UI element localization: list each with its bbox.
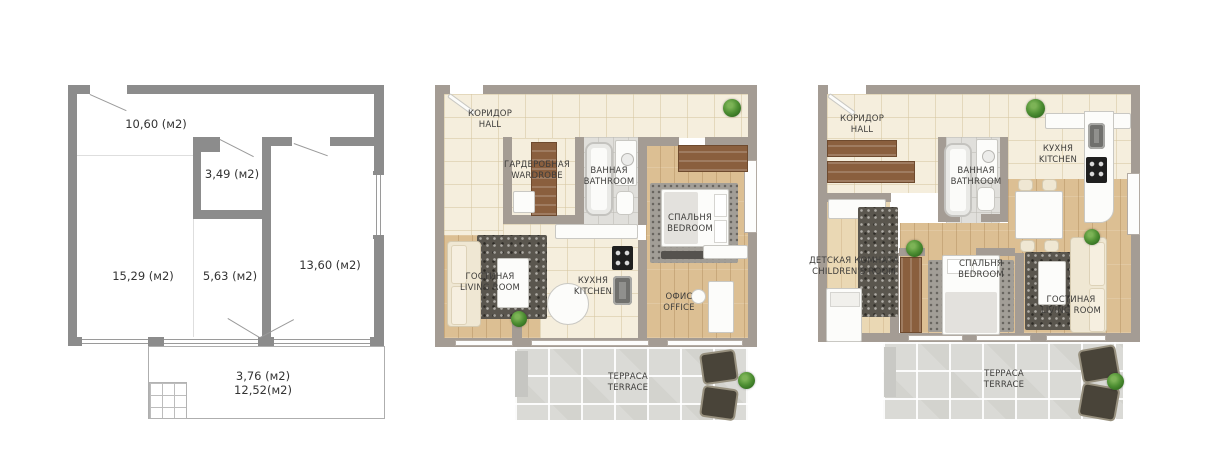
wall xyxy=(435,85,444,347)
window xyxy=(376,173,381,237)
room-label-office: ОФИСOFFICE xyxy=(663,292,694,314)
wall xyxy=(374,85,384,173)
plant xyxy=(1107,373,1124,390)
wall xyxy=(373,171,384,175)
sink-basin xyxy=(621,153,634,166)
wall xyxy=(647,137,679,146)
wall xyxy=(193,210,270,219)
terrace-chair xyxy=(699,385,739,422)
wall xyxy=(638,240,647,338)
area-label-terrace-full: 12,52(м2) xyxy=(234,383,292,397)
door-swing-line xyxy=(294,143,328,156)
window xyxy=(1046,335,1106,341)
window xyxy=(531,340,649,346)
pillow xyxy=(714,194,727,217)
stove xyxy=(1086,157,1107,183)
wall xyxy=(262,137,271,346)
office-shelf xyxy=(703,245,748,259)
wall xyxy=(373,235,384,239)
area-label-living: 15,29 (м2) xyxy=(112,269,174,283)
wall xyxy=(483,85,757,94)
sofa-cushion xyxy=(1089,242,1105,286)
room-label-bathroom: ВАННАЯBATHROOM xyxy=(584,166,635,188)
stairs xyxy=(149,382,187,419)
room-label-bathroom: ВАННАЯBATHROOM xyxy=(951,166,1002,188)
room-label-hall: КОРИДОРHALL xyxy=(468,109,512,131)
window xyxy=(976,335,1031,341)
floor-plan-furnished-a: КОРИДОРHALL ГАРДЕРОБНАЯWARDROBE ВАННАЯBA… xyxy=(435,85,757,423)
floor-plans-image: 10,60 (м2) 3,49 (м2) 15,29 (м2) 5,63 (м2… xyxy=(0,0,1209,475)
room-divider-line xyxy=(193,219,194,337)
door-swing-line xyxy=(227,318,259,338)
kitchen-counter xyxy=(555,224,638,239)
window xyxy=(908,335,963,341)
room-label-children: ДЕТСКАЯ КОМНАТАCHILDREN'S ROOM xyxy=(809,256,899,278)
wall xyxy=(127,85,384,94)
dining-table xyxy=(1015,191,1063,239)
plant xyxy=(1026,99,1045,118)
blanket xyxy=(945,292,997,333)
window xyxy=(82,339,148,344)
wall xyxy=(330,137,374,146)
floor-plan-furnished-b: КОРИДОРHALL ВАННАЯBATHROOM КУХНЯKITCHEN … xyxy=(818,85,1140,423)
room-label-kitchen: КУХНЯKITCHEN xyxy=(1039,144,1077,166)
door-swing-line xyxy=(90,94,127,111)
sofa xyxy=(1070,237,1107,333)
area-label-terrace-half: 3,76 (м2) xyxy=(236,369,290,383)
wall xyxy=(271,137,292,146)
hall-cabinet xyxy=(827,161,915,183)
wall xyxy=(68,85,77,346)
window-bay xyxy=(1127,173,1140,235)
room-label-bedroom: СПАЛЬНЯBEDROOM xyxy=(667,213,713,235)
kitchen-sink xyxy=(613,276,632,305)
wall xyxy=(148,337,164,346)
plant xyxy=(1084,229,1100,245)
room-label-terrace: ТЕРРАСАTERRACE xyxy=(608,372,648,394)
wall xyxy=(370,337,384,346)
room-label-wardrobe: ГАРДЕРОБНАЯWARDROBE xyxy=(504,160,570,182)
plant xyxy=(906,240,923,257)
plant xyxy=(738,372,755,389)
hall-cabinet xyxy=(827,140,897,157)
toilet xyxy=(977,187,995,211)
room-label-living: ГОСТИНАЯLIVING ROOM xyxy=(1041,295,1101,317)
dining-chair xyxy=(1020,240,1035,252)
room-label-hall: КОРИДОРHALL xyxy=(840,114,884,136)
area-label-kitchen: 5,63 (м2) xyxy=(203,269,257,283)
toilet xyxy=(616,191,634,215)
sink-basin xyxy=(982,150,995,163)
plant xyxy=(511,311,527,327)
wall xyxy=(1015,253,1024,333)
kitchen-sink xyxy=(1088,123,1105,149)
stove xyxy=(612,246,633,270)
hall-floor xyxy=(444,138,503,235)
children-bed xyxy=(826,288,862,342)
room-divider-line xyxy=(77,155,193,156)
room-label-kitchen: КУХНЯKITCHEN xyxy=(574,276,612,298)
wall xyxy=(374,237,384,337)
wardrobe-shelf xyxy=(513,191,535,213)
room-label-living: ГОСТИНАЯLIVING ROOM xyxy=(460,272,520,294)
window xyxy=(164,339,258,344)
wall xyxy=(981,214,1008,222)
dining-chair xyxy=(1044,240,1059,252)
window xyxy=(667,340,743,346)
wall xyxy=(68,337,82,346)
area-label-wardrobe: 3,49 (м2) xyxy=(205,167,259,181)
terrace-chair xyxy=(699,349,739,386)
terrace-planter xyxy=(884,347,896,397)
area-label-bedroom: 13,60 (м2) xyxy=(299,258,361,272)
dining-chair xyxy=(1042,179,1057,191)
wall xyxy=(866,85,1140,94)
floor-plan-schematic: 10,60 (м2) 3,49 (м2) 15,29 (м2) 5,63 (м2… xyxy=(68,85,384,418)
room-label-bedroom: СПАЛЬНЯBEDROOM xyxy=(958,259,1004,281)
wall xyxy=(638,137,647,225)
area-label-hall: 10,60 (м2) xyxy=(125,117,187,131)
wardrobe-cabinet xyxy=(900,257,922,333)
terrace-planter xyxy=(515,351,528,397)
pillow xyxy=(714,220,727,243)
pillow xyxy=(830,292,860,307)
bedroom-wardrobe xyxy=(678,145,748,172)
wall xyxy=(503,215,584,224)
wall xyxy=(193,137,220,152)
room-label-terrace: ТЕРРАСАTERRACE xyxy=(984,369,1024,391)
door-swing-line xyxy=(220,139,254,157)
dining-chair xyxy=(1018,179,1033,191)
office-desk xyxy=(708,281,734,333)
window xyxy=(455,340,513,346)
window xyxy=(274,339,370,344)
plant xyxy=(723,99,741,117)
